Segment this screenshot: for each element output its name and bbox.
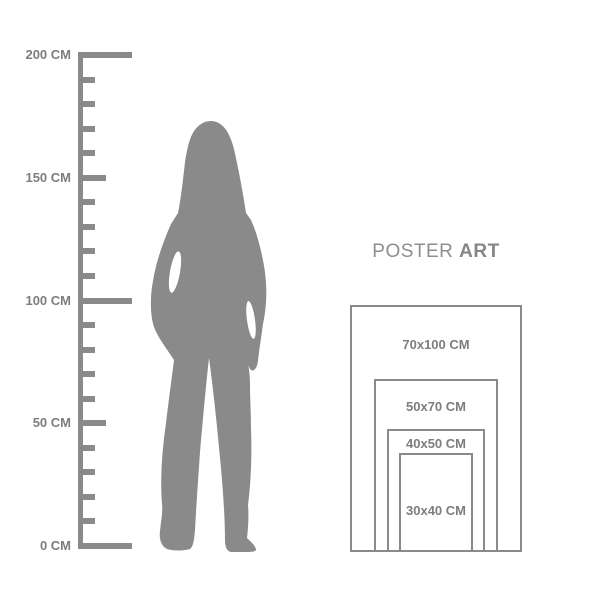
poster-label-50x70: 50x70 CM — [361, 399, 511, 415]
panel-title-regular: POSTER — [372, 241, 453, 262]
poster-label-30x40: 30x40 CM — [361, 503, 511, 519]
panel-title-bold: ART — [459, 241, 500, 262]
poster-size-guide: 200 CM150 CM100 CM50 CM0 CM POSTER ART 7… — [0, 0, 600, 600]
poster-label-70x100: 70x100 CM — [361, 337, 511, 353]
poster-label-40x50: 40x50 CM — [361, 436, 511, 452]
panel-title: POSTER ART — [336, 241, 536, 263]
